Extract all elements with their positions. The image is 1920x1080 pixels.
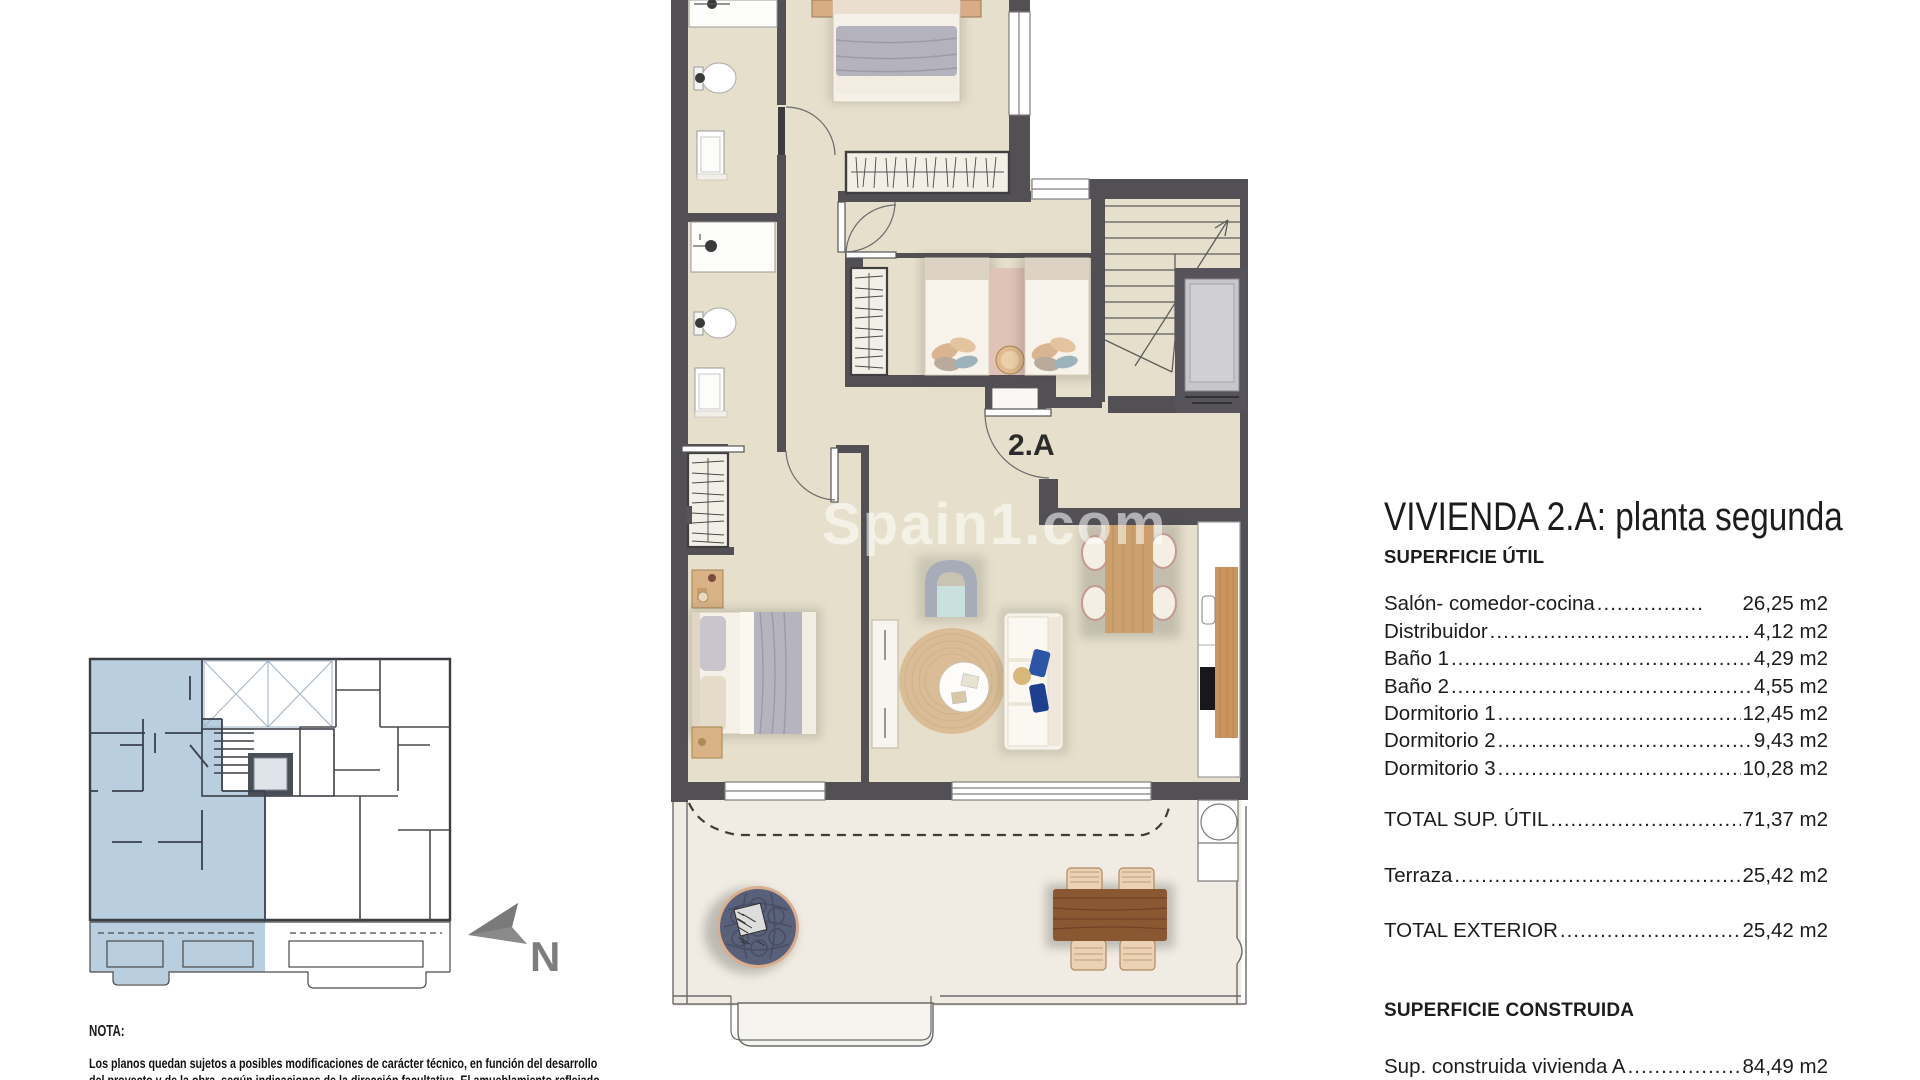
svg-text:2.A: 2.A — [1008, 429, 1055, 462]
svg-text:N: N — [530, 933, 560, 980]
